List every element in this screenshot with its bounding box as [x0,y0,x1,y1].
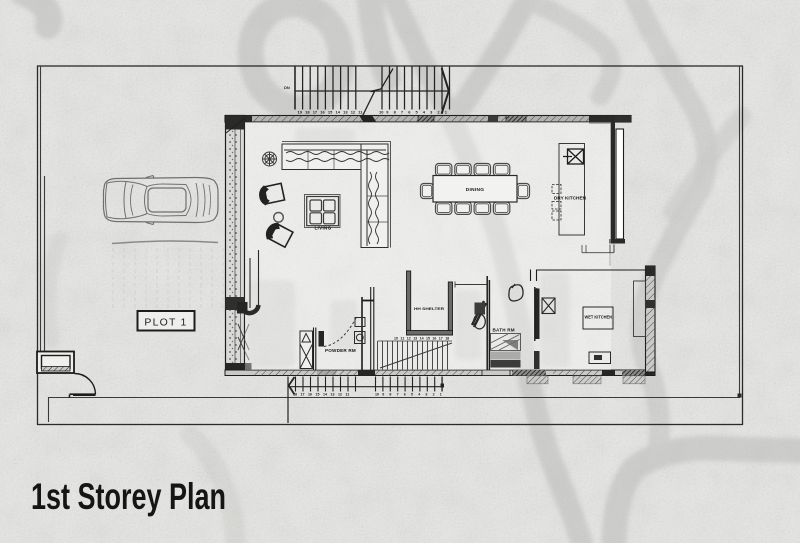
svg-text:1: 1 [440,393,442,397]
svg-text:19: 19 [298,110,303,115]
svg-text:10: 10 [375,393,379,397]
svg-text:POWDER RM: POWDER RM [325,348,356,353]
svg-text:2: 2 [433,393,435,397]
svg-text:PLOT 1: PLOT 1 [144,317,187,329]
svg-text:16: 16 [308,393,312,397]
svg-text:HH SHELTER: HH SHELTER [414,306,444,311]
svg-text:10: 10 [379,110,384,115]
svg-text:14: 14 [336,110,341,115]
svg-text:14: 14 [323,393,327,397]
svg-text:7: 7 [397,393,399,397]
svg-text:WET KITCHEN: WET KITCHEN [585,315,613,320]
svg-text:16: 16 [432,337,436,341]
svg-text:12: 12 [338,393,342,397]
svg-text:13: 13 [413,337,417,341]
svg-text:12: 12 [351,110,356,115]
svg-text:5: 5 [411,393,413,397]
svg-text:15: 15 [328,110,333,115]
svg-text:18: 18 [293,393,297,397]
svg-text:16: 16 [320,110,325,115]
svg-text:DINING: DINING [466,187,485,193]
svg-text:14: 14 [420,337,424,341]
svg-text:8: 8 [389,393,391,397]
svg-text:18: 18 [445,337,449,341]
svg-text:1st Storey Plan: 1st Storey Plan [31,476,226,517]
svg-text:BATH RM: BATH RM [493,328,515,333]
svg-text:17: 17 [313,110,318,115]
svg-text:4: 4 [418,393,420,397]
svg-text:9: 9 [382,393,384,397]
svg-text:3: 3 [425,393,427,397]
svg-text:13: 13 [331,393,335,397]
svg-text:DRY KITCHEN: DRY KITCHEN [554,196,586,201]
svg-text:11: 11 [346,393,350,397]
svg-text:18: 18 [305,110,310,115]
svg-text:LIVING: LIVING [314,226,331,231]
svg-text:17: 17 [301,393,305,397]
svg-text:10: 10 [394,337,398,341]
svg-text:6: 6 [404,393,406,397]
svg-text:17: 17 [439,337,443,341]
svg-text:13: 13 [343,110,348,115]
svg-text:15: 15 [316,393,320,397]
svg-text:15: 15 [426,337,430,341]
svg-text:12: 12 [407,337,411,341]
svg-text:11: 11 [400,337,404,341]
svg-text:DN: DN [284,85,290,90]
